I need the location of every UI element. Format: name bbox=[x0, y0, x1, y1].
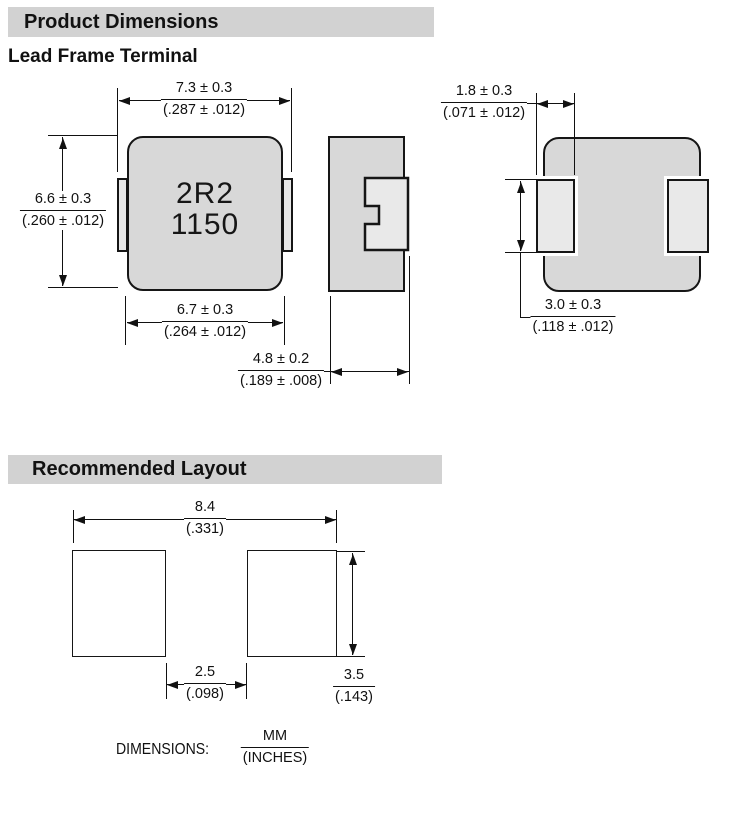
extension-line bbox=[284, 296, 285, 345]
arrowhead-right bbox=[279, 97, 290, 105]
section-header-recommended-layout: Recommended Layout bbox=[8, 455, 442, 484]
arrowhead-up bbox=[517, 182, 525, 193]
extension-line bbox=[125, 296, 126, 345]
front-view-terminal-right bbox=[282, 178, 293, 252]
extension-tick bbox=[48, 287, 118, 288]
arrowhead-down bbox=[349, 644, 357, 655]
extension-line bbox=[73, 510, 74, 543]
dim-label-pad-gap: 2.5 (.098) bbox=[184, 664, 226, 703]
side-view-terminal bbox=[363, 176, 411, 252]
arrowhead-down bbox=[59, 275, 67, 286]
section-title: Product Dimensions bbox=[24, 11, 218, 34]
arrowhead-right bbox=[563, 100, 574, 108]
extension-line bbox=[409, 256, 410, 384]
dim-label-body-height: 6.6 ± 0.3 (.260 ± .012) bbox=[20, 191, 106, 230]
extension-line bbox=[336, 510, 337, 543]
arrowhead-down bbox=[517, 240, 525, 251]
units-note-fraction: MM (INCHES) bbox=[241, 728, 309, 767]
extension-tick bbox=[337, 656, 365, 657]
dim-label-terminal-width: 1.8 ± 0.3 (.071 ± .012) bbox=[441, 83, 527, 122]
leader-line bbox=[520, 252, 521, 317]
arrowhead-left bbox=[537, 100, 548, 108]
dim-label-body-width-top: 7.3 ± 0.3 (.287 ± .012) bbox=[161, 80, 247, 119]
dim-label-pad-outer-span: 8.4 (.331) bbox=[184, 499, 226, 538]
extension-line bbox=[246, 663, 247, 699]
dim-label-body-thickness: 4.8 ± 0.2 (.189 ± .008) bbox=[238, 351, 324, 390]
arrowhead-right bbox=[325, 516, 336, 524]
part-marking: 2R2 1150 bbox=[127, 178, 283, 240]
extension-tick bbox=[337, 551, 365, 552]
extension-line bbox=[291, 88, 292, 172]
extension-line bbox=[117, 88, 118, 172]
bottom-view-pad-right bbox=[667, 179, 709, 253]
layout-pad-right bbox=[247, 550, 337, 657]
arrowhead-right bbox=[397, 368, 408, 376]
dim-label-terminal-height: 3.0 ± 0.3 (.118 ± .012) bbox=[530, 297, 615, 336]
arrowhead-right bbox=[272, 319, 283, 327]
extension-line bbox=[536, 93, 537, 175]
arrowhead-left bbox=[167, 681, 178, 689]
extension-tick bbox=[48, 135, 118, 136]
layout-pad-left bbox=[72, 550, 166, 657]
datasheet-dimensions-drawing: Product Dimensions Lead Frame Terminal 2… bbox=[0, 0, 750, 817]
arrowhead-up bbox=[349, 554, 357, 565]
extension-tick bbox=[505, 179, 537, 180]
section-title: Recommended Layout bbox=[32, 458, 246, 481]
extension-tick bbox=[505, 252, 537, 253]
dim-label-body-width-bottom: 6.7 ± 0.3 (.264 ± .012) bbox=[162, 302, 248, 341]
arrowhead-left bbox=[74, 516, 85, 524]
units-note-label: DIMENSIONS: bbox=[116, 741, 209, 759]
subsection-title-lead-frame-terminal: Lead Frame Terminal bbox=[8, 46, 198, 68]
part-marking-line1: 2R2 bbox=[127, 178, 283, 209]
arrowhead-left bbox=[119, 97, 130, 105]
arrowhead-right bbox=[235, 681, 246, 689]
arrowhead-left bbox=[127, 319, 138, 327]
dimension-line bbox=[352, 553, 353, 655]
extension-line bbox=[574, 93, 575, 175]
arrowhead-up bbox=[59, 138, 67, 149]
arrowhead-left bbox=[331, 368, 342, 376]
part-marking-line2: 1150 bbox=[127, 209, 283, 240]
dim-label-pad-height: 3.5 (.143) bbox=[333, 667, 375, 706]
bottom-view-pad-left bbox=[536, 179, 575, 253]
section-header-product-dimensions: Product Dimensions bbox=[8, 7, 434, 37]
